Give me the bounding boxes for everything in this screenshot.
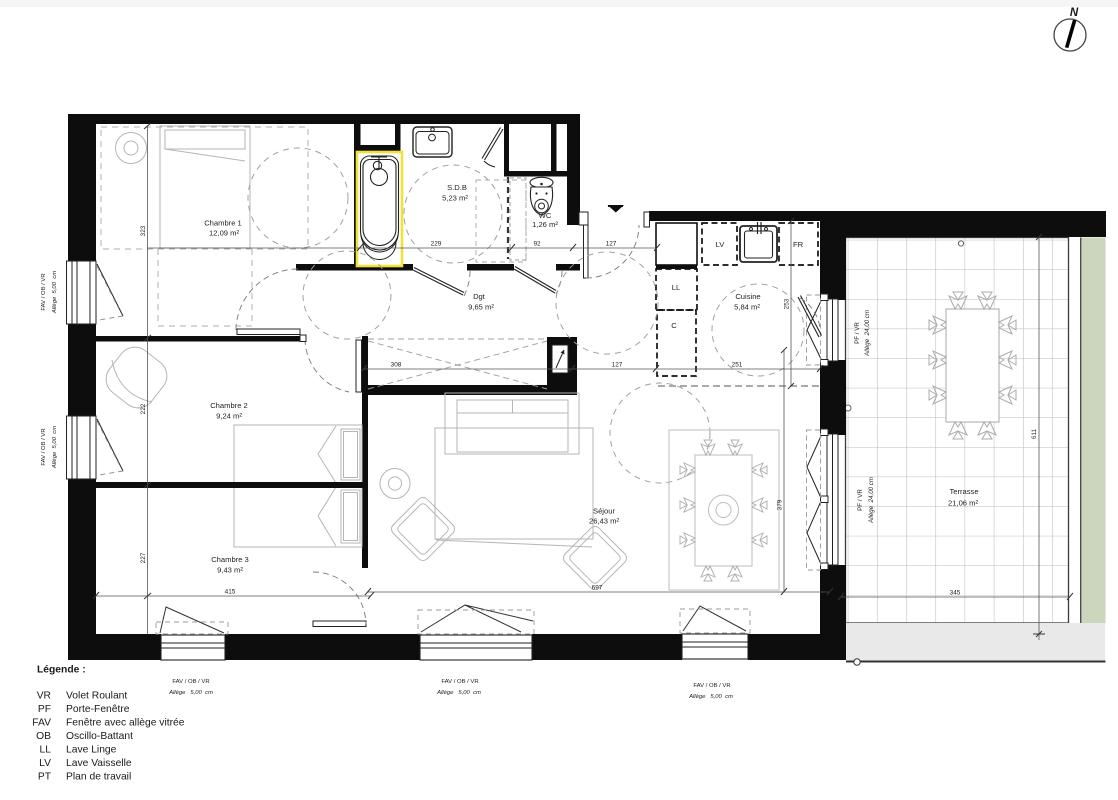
svg-text:323: 323: [140, 225, 147, 236]
svg-text:S.D.B: S.D.B: [447, 183, 467, 192]
svg-text:Oscillo-Battant: Oscillo-Battant: [66, 731, 133, 742]
svg-text:C: C: [671, 321, 677, 330]
svg-text:FAV: FAV: [32, 718, 51, 729]
svg-text:Allège 24,00 cm: Allège 24,00 cm: [864, 310, 871, 357]
svg-text:PF / VR: PF / VR: [857, 489, 864, 511]
svg-text:Allège 5,00 cm: Allège 5,00 cm: [688, 694, 733, 700]
svg-text:5,84 m²: 5,84 m²: [734, 303, 760, 312]
svg-text:26,43 m²: 26,43 m²: [589, 517, 619, 526]
svg-text:697: 697: [592, 585, 603, 592]
svg-text:227: 227: [140, 552, 147, 563]
svg-text:Porte-Fenêtre: Porte-Fenêtre: [66, 704, 130, 715]
svg-text:FAV / OB / VR: FAV / OB / VR: [441, 679, 478, 685]
svg-text:Dgt: Dgt: [473, 292, 486, 301]
svg-text:PF / VR: PF / VR: [854, 322, 861, 344]
svg-text:FR: FR: [793, 240, 804, 249]
svg-text:VR: VR: [37, 691, 51, 702]
svg-text:9,65 m²: 9,65 m²: [468, 303, 494, 312]
svg-text:Allège 24,00 cm: Allège 24,00 cm: [868, 477, 875, 524]
svg-text:379: 379: [777, 499, 784, 510]
svg-text:Allège 5,00 cm: Allège 5,00 cm: [52, 271, 58, 314]
svg-text:308: 308: [391, 362, 402, 369]
svg-text:Allège 5,00 cm: Allège 5,00 cm: [436, 690, 481, 696]
svg-text:229: 229: [431, 241, 442, 248]
svg-text:Lave Vaisselle: Lave Vaisselle: [66, 758, 132, 769]
svg-text:FAV / OB / VR: FAV / OB / VR: [41, 428, 47, 465]
svg-text:Fenêtre avec allège vitrée: Fenêtre avec allège vitrée: [66, 718, 185, 729]
svg-text:Volet Roulant: Volet Roulant: [66, 691, 127, 702]
svg-text:253: 253: [784, 298, 791, 309]
svg-text:Légende :: Légende :: [37, 665, 86, 676]
svg-text:Chambre 2: Chambre 2: [210, 401, 248, 410]
svg-text:251: 251: [732, 362, 743, 369]
svg-text:9,43 m²: 9,43 m²: [217, 566, 243, 575]
svg-text:WC: WC: [539, 211, 552, 220]
svg-text:Séjour: Séjour: [593, 507, 615, 516]
svg-text:FAV / OB / VR: FAV / OB / VR: [693, 683, 730, 689]
svg-text:N: N: [1070, 7, 1079, 19]
svg-text:611: 611: [1031, 428, 1038, 439]
svg-text:LV: LV: [39, 758, 51, 769]
svg-text:415: 415: [225, 589, 236, 596]
svg-text:5,23 m²: 5,23 m²: [442, 194, 468, 203]
svg-text:Cuisine: Cuisine: [735, 292, 760, 301]
svg-text:LV: LV: [716, 240, 726, 249]
svg-text:92: 92: [533, 241, 541, 248]
svg-text:Plan de travail: Plan de travail: [66, 772, 131, 783]
svg-text:FAV / OB / VR: FAV / OB / VR: [41, 273, 47, 310]
svg-text:9,24 m²: 9,24 m²: [216, 412, 242, 421]
svg-text:127: 127: [612, 362, 623, 369]
svg-text:1,26 m²: 1,26 m²: [532, 220, 558, 229]
svg-text:222: 222: [140, 403, 147, 414]
svg-text:Lave Linge: Lave Linge: [66, 745, 117, 756]
svg-text:OB: OB: [36, 731, 51, 742]
svg-text:12,09 m²: 12,09 m²: [209, 229, 239, 238]
svg-text:Chambre 3: Chambre 3: [211, 555, 249, 564]
svg-text:Allège 5,00 cm: Allège 5,00 cm: [168, 690, 213, 696]
svg-text:LL: LL: [40, 745, 52, 756]
svg-text:345: 345: [950, 590, 961, 597]
svg-text:Terrasse: Terrasse: [949, 487, 978, 496]
svg-text:PF: PF: [38, 704, 51, 715]
svg-text:Allège 5,00 cm: Allège 5,00 cm: [52, 426, 58, 469]
svg-text:127: 127: [606, 241, 617, 248]
svg-text:PT: PT: [38, 772, 52, 783]
svg-text:LL: LL: [672, 283, 680, 292]
svg-text:21,06 m²: 21,06 m²: [948, 499, 978, 508]
svg-text:Chambre 1: Chambre 1: [204, 219, 242, 228]
svg-text:FAV / OB / VR: FAV / OB / VR: [172, 679, 209, 685]
